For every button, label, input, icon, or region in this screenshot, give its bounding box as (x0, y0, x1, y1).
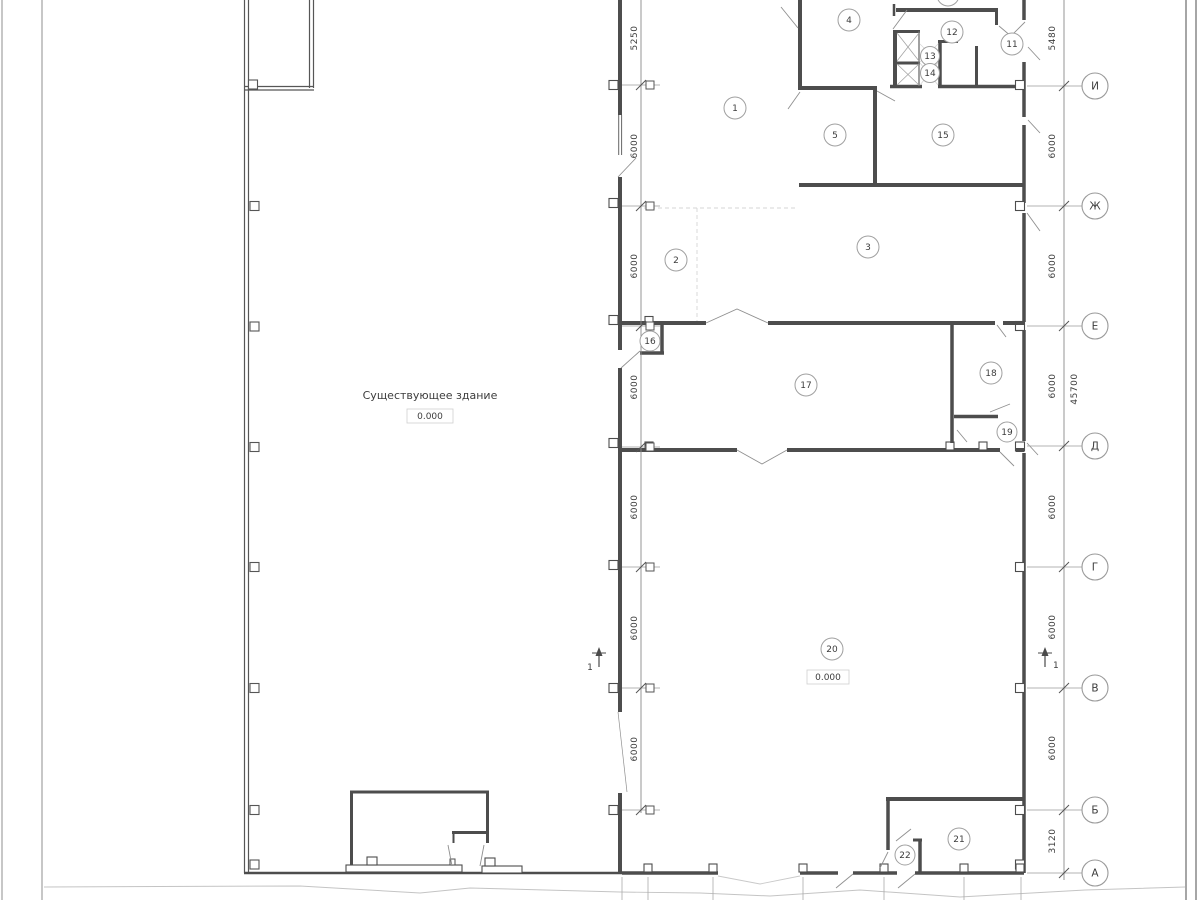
room-label: 21 (953, 835, 964, 845)
axis-label: А (1091, 868, 1099, 880)
right-dimension-line: 5480 6000 6000 6000 6000 6000 6000 3120 … (1027, 0, 1082, 880)
dim-label: 6000 (630, 616, 640, 641)
room-label: 17 (800, 381, 811, 391)
room-label: 16 (644, 337, 656, 347)
room-number-bubbles (640, 0, 1023, 865)
dim-label: 6000 (1048, 374, 1058, 399)
annotations: Существующее здание 0.000 0.000 (363, 389, 849, 684)
room-label: 2 (673, 256, 679, 266)
dim-label: 6000 (630, 375, 640, 400)
dim-label: 6000 (1048, 254, 1058, 279)
hall-level: 0.000 (815, 673, 841, 683)
room-label: 18 (985, 369, 997, 379)
axis-markers (1082, 73, 1108, 886)
dim-label: 6000 (1048, 736, 1058, 761)
room-label: 14 (924, 69, 936, 79)
axis-label: И (1091, 81, 1099, 93)
existing-building-level: 0.000 (417, 412, 443, 422)
room-label: 3 (865, 243, 871, 253)
section-mark-label: 1 (1053, 661, 1059, 671)
ground-line (44, 886, 1185, 897)
new-building-walls (622, 0, 1025, 873)
dim-label: 5250 (630, 26, 640, 51)
room-label: 13 (924, 52, 935, 62)
room-label: 22 (899, 851, 910, 861)
left-dimension-line: 5250 6000 6000 6000 6000 6000 6000 (622, 0, 660, 815)
dim-label: 6000 (630, 737, 640, 762)
room-label: 15 (937, 131, 948, 141)
room-label: 19 (1001, 428, 1013, 438)
section-mark-label: 1 (587, 663, 593, 673)
room-label: 5 (832, 131, 838, 141)
section-mark-left: 1 (587, 647, 606, 673)
floor-plan-canvas: 5250 6000 6000 6000 6000 6000 6000 5480 … (0, 0, 1200, 900)
dim-label: 6000 (1048, 615, 1058, 640)
drawing-sheet: 5250 6000 6000 6000 6000 6000 6000 5480 … (0, 0, 1200, 900)
dim-label: 5480 (1048, 26, 1058, 51)
room-label: 4 (846, 16, 852, 26)
dim-label: 6000 (1048, 134, 1058, 159)
axis-label: В (1091, 683, 1098, 695)
dim-label: 3120 (1048, 829, 1058, 854)
dim-label: 6000 (630, 134, 640, 159)
axis-label: Б (1091, 805, 1098, 817)
axis-label: Е (1092, 321, 1099, 333)
existing-building-label: Существующее здание (363, 389, 498, 402)
dim-total-label: 45700 (1070, 373, 1080, 404)
room-label: 11 (1006, 40, 1017, 50)
axis-labels: И Ж Е Д Г В Б А (1089, 81, 1101, 880)
center-wall (609, 0, 622, 873)
axis-label: Ж (1089, 201, 1101, 213)
room-label: 12 (946, 28, 957, 38)
dim-label: 6000 (1048, 495, 1058, 520)
room-label: 20 (826, 645, 838, 655)
dim-label: 6000 (630, 254, 640, 279)
axis-label: Д (1091, 441, 1099, 453)
existing-building-walls (244, 0, 622, 873)
room-label: 1 (732, 104, 738, 114)
axis-label: Г (1092, 562, 1098, 574)
dim-label: 6000 (630, 495, 640, 520)
section-mark-right: 1 (1038, 647, 1059, 671)
